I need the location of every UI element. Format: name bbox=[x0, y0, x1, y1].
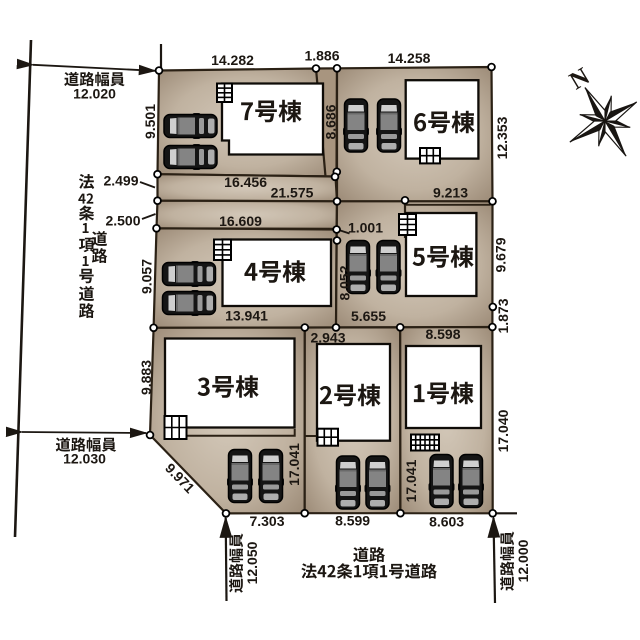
svg-text:16.456: 16.456 bbox=[224, 174, 267, 190]
svg-text:14.282: 14.282 bbox=[211, 52, 254, 68]
svg-text:8.052: 8.052 bbox=[337, 265, 353, 300]
svg-text:1.873: 1.873 bbox=[495, 298, 511, 333]
svg-text:9.883: 9.883 bbox=[138, 360, 154, 395]
svg-text:12.353: 12.353 bbox=[494, 116, 510, 159]
svg-text:17.041: 17.041 bbox=[286, 443, 302, 486]
svg-text:2.500: 2.500 bbox=[105, 213, 140, 229]
svg-text:16.609: 16.609 bbox=[219, 213, 262, 229]
svg-text:2.943: 2.943 bbox=[310, 330, 345, 346]
svg-text:12.000: 12.000 bbox=[515, 539, 531, 582]
svg-text:5.655: 5.655 bbox=[351, 308, 386, 324]
svg-text:17.040: 17.040 bbox=[495, 409, 511, 452]
svg-text:17.041: 17.041 bbox=[403, 459, 419, 502]
svg-text:21.575: 21.575 bbox=[271, 185, 314, 201]
svg-text:9.679: 9.679 bbox=[493, 237, 509, 272]
svg-text:8.599: 8.599 bbox=[335, 513, 370, 529]
svg-text:9.057: 9.057 bbox=[139, 259, 155, 294]
svg-text:12.050: 12.050 bbox=[244, 541, 260, 584]
svg-text:12.020: 12.020 bbox=[73, 86, 116, 102]
svg-text:8.686: 8.686 bbox=[323, 104, 339, 139]
svg-text:8.598: 8.598 bbox=[425, 326, 460, 342]
svg-text:13.941: 13.941 bbox=[225, 308, 268, 324]
svg-text:9.213: 9.213 bbox=[433, 185, 468, 201]
svg-text:9.501: 9.501 bbox=[142, 104, 158, 139]
svg-text:2.499: 2.499 bbox=[103, 173, 138, 189]
svg-text:1.886: 1.886 bbox=[304, 48, 339, 64]
svg-text:7.303: 7.303 bbox=[249, 513, 284, 529]
svg-text:14.258: 14.258 bbox=[388, 50, 431, 66]
svg-text:12.030: 12.030 bbox=[63, 451, 106, 467]
svg-text:8.603: 8.603 bbox=[429, 513, 464, 529]
svg-text:1.001: 1.001 bbox=[348, 220, 383, 236]
